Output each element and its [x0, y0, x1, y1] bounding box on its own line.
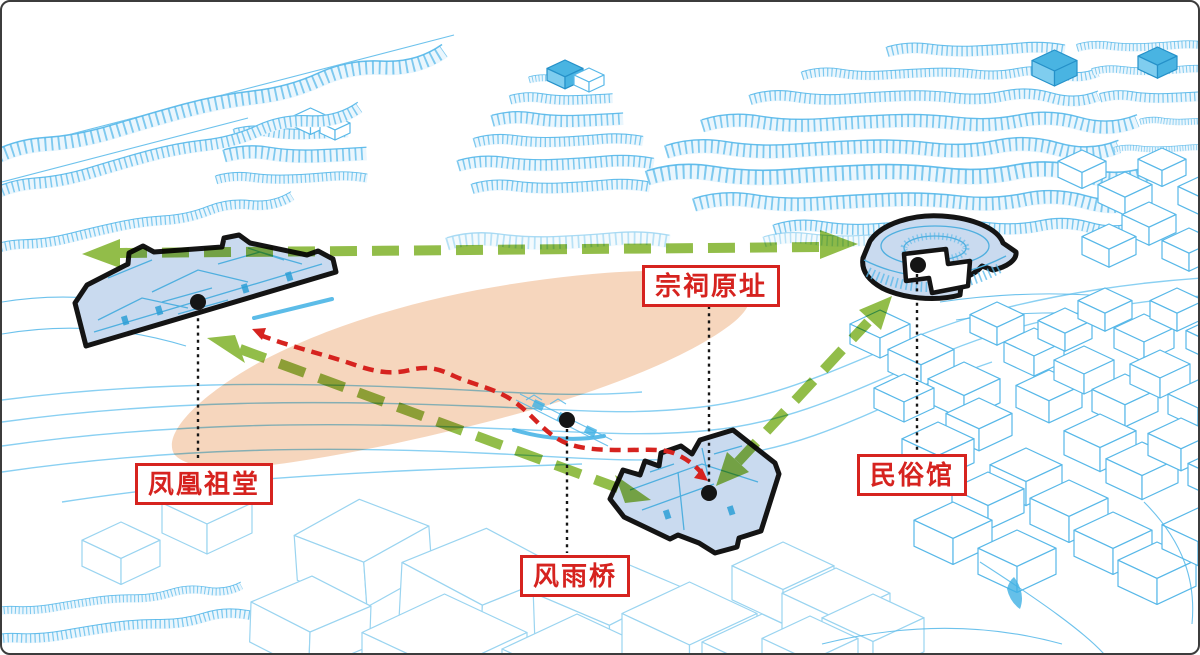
label-fenghuang-zutang: 凤凰祖堂	[135, 463, 273, 505]
site-plan-canvas: 凤凰祖堂 宗祠原址 民俗馆 风雨桥	[0, 0, 1200, 655]
label-minsu-guan: 民俗馆	[857, 454, 967, 496]
marker-fenghuang-zutang	[190, 294, 206, 310]
label-fengyu-qiao: 风雨桥	[520, 555, 630, 597]
building-minsu-guan	[863, 216, 1016, 299]
label-zongci-yuanzhi: 宗祠原址	[642, 265, 780, 307]
marker-zongci-site	[701, 485, 717, 501]
marker-minsu-guan	[910, 257, 926, 273]
marker-fengyu-qiao	[559, 412, 575, 428]
